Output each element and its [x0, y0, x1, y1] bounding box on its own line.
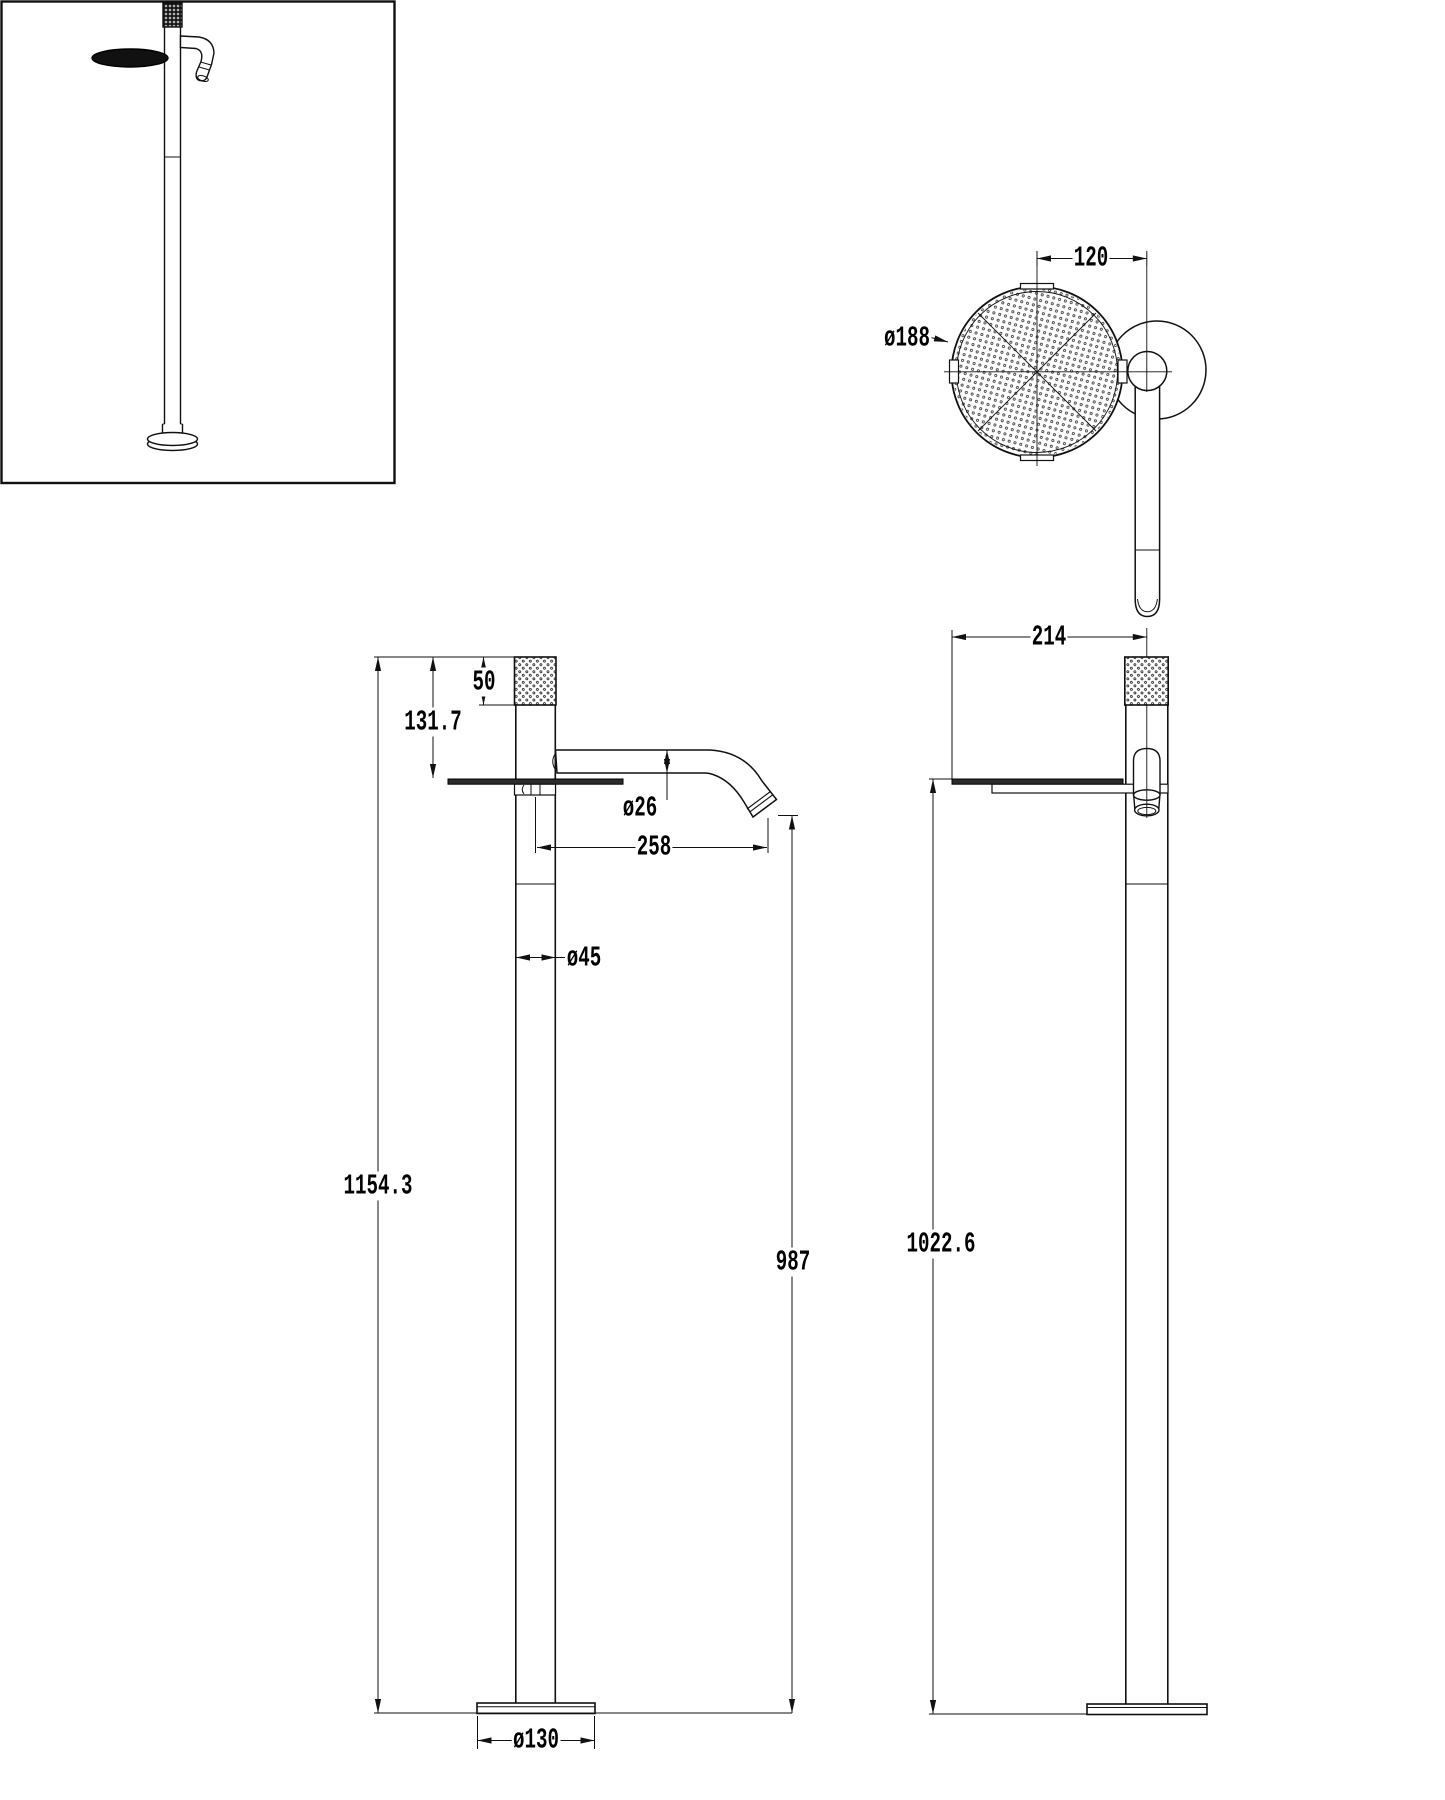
dim-overall-depth-label: 214 — [1030, 623, 1067, 652]
perspective-view — [2, 2, 395, 484]
top-view — [931, 251, 1206, 617]
drawing-canvas — [0, 0, 1445, 1800]
front-view — [374, 657, 798, 1749]
dim-overall-height-label: 1154.3 — [342, 1172, 414, 1201]
front-base — [477, 1703, 595, 1714]
dim-cap-to-tray-label: 131.7 — [403, 708, 463, 737]
perspective-knurled-cap — [163, 3, 182, 27]
front-dimensions — [374, 657, 798, 1749]
dim-head-diameter-leader — [931, 338, 948, 343]
dim-cap-height-label: 50 — [471, 668, 497, 697]
plan-knob-circle — [1128, 352, 1167, 391]
front-collar — [515, 784, 556, 795]
technical-drawing-page: 120 ø188 50 131.7 ø26 258 ø45 1154.3 987… — [0, 0, 1445, 1800]
front-column — [516, 705, 556, 1703]
perspective-base — [148, 433, 198, 451]
dim-spout-reach-label: 258 — [635, 833, 672, 862]
side-knurled-cap — [1125, 657, 1168, 705]
dim-base-diameter-label: ø130 — [512, 1726, 561, 1755]
side-tray — [952, 779, 1123, 784]
front-tray — [448, 779, 623, 784]
side-base — [1087, 1704, 1207, 1715]
dim-spout-outlet-height-label: 987 — [774, 1248, 811, 1277]
dim-column-diameter-label: ø45 — [565, 944, 602, 973]
side-column — [1126, 705, 1168, 1704]
dim-head-diameter-label: ø188 — [883, 324, 932, 353]
perspective-tray-disc — [92, 49, 168, 67]
front-knurled-cap — [515, 657, 557, 705]
dim-tray-surface-height-label: 1022.6 — [905, 1230, 977, 1259]
plan-lever — [1135, 385, 1159, 617]
dim-spout-diameter-label: ø26 — [621, 794, 658, 823]
dim-head-offset-label: 120 — [1072, 244, 1109, 273]
side-view — [929, 628, 1207, 1715]
